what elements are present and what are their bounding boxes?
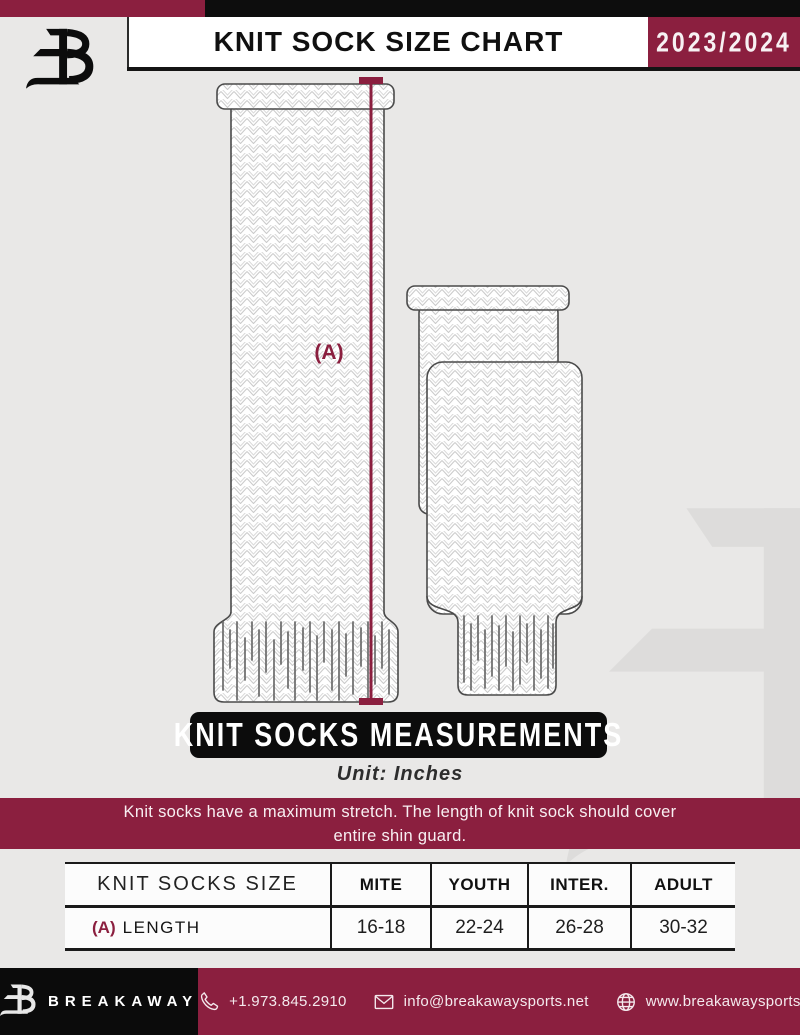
table-header-youth: YOUTH [430,864,527,908]
length-value-adult: 30-32 [630,908,735,948]
email-address[interactable]: info@breakawaysports.net [404,993,589,1010]
phone-contact: +1.973.845.2910 [198,991,347,1013]
sock-illustration [0,0,800,760]
knit-sock-size-chart-page: KNIT SOCK SIZE CHART 2023/2024 [0,0,800,1035]
email-contact[interactable]: info@breakawaysports.net [373,991,589,1013]
length-value-inter: 26-28 [527,908,630,948]
unit-label: Unit: Inches [0,763,800,786]
footer-brand-block: BREAKAWAY [0,968,198,1035]
length-value-youth: 22-24 [430,908,527,948]
length-value-mite: 16-18 [330,908,430,948]
measure-a-label: (A) [304,341,354,365]
breakaway-footer-logo-icon [0,982,38,1022]
note-line-2: entire shin guard. [334,824,467,848]
website-contact[interactable]: www.breakawaysports.net [615,991,800,1013]
footer-brand-name: BREAKAWAY [48,993,198,1010]
measurements-banner-title: KNIT SOCKS MEASUREMENTS [174,716,624,754]
note-line-1: Knit socks have a maximum stretch. The l… [124,800,677,824]
table-header-adult: ADULT [630,864,735,908]
globe-icon [615,991,637,1013]
table-header-size: KNIT SOCKS SIZE [65,864,330,908]
phone-number: +1.973.845.2910 [229,993,347,1010]
footer-contact-block: +1.973.845.2910 info@breakawaysports.net… [198,968,800,1035]
footer: BREAKAWAY +1.973.845.2910 info@breakaway… [0,968,800,1035]
envelope-icon [373,991,395,1013]
phone-icon [198,991,220,1013]
measurements-banner: KNIT SOCKS MEASUREMENTS [190,712,607,758]
table-header-mite: MITE [330,864,430,908]
stretch-note-banner: Knit socks have a maximum stretch. The l… [0,798,800,849]
sock-small [427,362,582,695]
length-label: LENGTH [123,918,201,938]
table-header-inter: INTER. [527,864,630,908]
length-prefix-a: (A) [92,918,116,938]
table-row-length-label: (A) LENGTH [65,908,330,948]
website-url[interactable]: www.breakawaysports.net [646,993,800,1010]
size-table: KNIT SOCKS SIZE MITE YOUTH INTER. ADULT … [65,862,735,951]
